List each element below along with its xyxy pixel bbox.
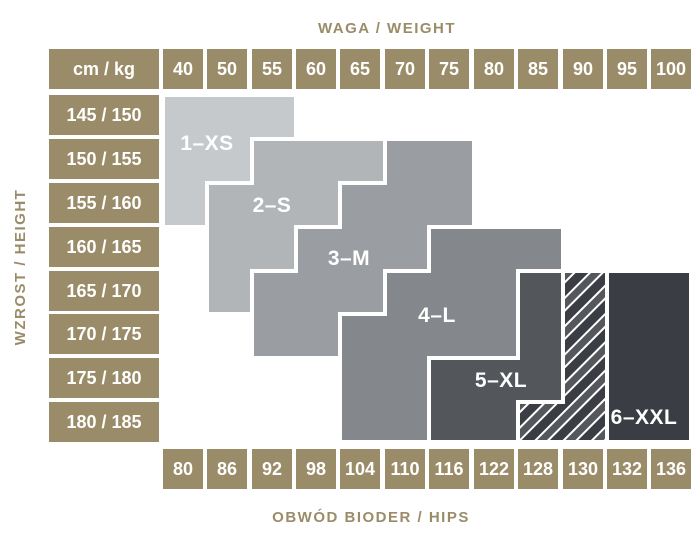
weight-header-row: cm / kg 40 50 55 60 65 70 75 80 85 90 95… — [49, 49, 691, 89]
weight-cell-label: 55 — [262, 59, 282, 79]
hips-cell-label: 130 — [568, 459, 598, 479]
height-cell-label: 155 / 160 — [66, 193, 141, 213]
weight-cell-label: 95 — [617, 59, 637, 79]
corner-cell-label: cm / kg — [73, 59, 135, 79]
size-label-5-xl: 5–XL — [475, 369, 527, 392]
height-cell-label: 180 / 185 — [66, 412, 141, 432]
size-label-2-s: 2–S — [253, 194, 292, 217]
hips-cell-label: 92 — [262, 459, 282, 479]
weight-cell-label: 40 — [173, 59, 193, 79]
weight-cell-label: 85 — [528, 59, 548, 79]
weight-cell-label: 65 — [350, 59, 370, 79]
height-cell-label: 150 / 155 — [66, 149, 141, 169]
height-header-column: 145 / 150 150 / 155 155 / 160 160 / 165 … — [49, 95, 159, 442]
height-cell-label: 165 / 170 — [66, 281, 141, 301]
hips-cell-label: 128 — [523, 459, 553, 479]
hips-cell-label: 80 — [173, 459, 193, 479]
weight-cell-label: 60 — [306, 59, 326, 79]
left-axis-title: WZROST / HEIGHT — [12, 189, 29, 346]
top-axis-title: WAGA / WEIGHT — [318, 20, 456, 37]
hips-cell-label: 86 — [217, 459, 237, 479]
weight-cell-label: 100 — [656, 59, 686, 79]
size-label-1-xs: 1–XS — [180, 132, 233, 155]
height-cell-label: 170 / 175 — [66, 324, 141, 344]
hips-cell-label: 116 — [434, 459, 463, 479]
size-label-4-l: 4–L — [418, 304, 456, 327]
weight-cell-label: 75 — [439, 59, 459, 79]
weight-cell-label: 70 — [395, 59, 415, 79]
hips-cell-label: 122 — [479, 459, 509, 479]
hips-cell-label: 132 — [612, 459, 642, 479]
size-chart-svg: WAGA / WEIGHT WZROST / HEIGHT OBWÓD BIOD… — [0, 0, 697, 539]
hips-footer-row: 80 86 92 98 104 110 116 122 128 130 132 … — [163, 449, 691, 489]
height-cell-label: 160 / 165 — [66, 237, 141, 257]
hips-cell-label: 98 — [306, 459, 326, 479]
height-cell-label: 145 / 150 — [66, 105, 141, 125]
weight-cell-label: 90 — [573, 59, 593, 79]
size-chart: WAGA / WEIGHT WZROST / HEIGHT OBWÓD BIOD… — [0, 0, 697, 539]
size-label-3-m: 3–M — [328, 247, 370, 270]
weight-cell-label: 50 — [217, 59, 237, 79]
bottom-axis-title: OBWÓD BIODER / HIPS — [272, 508, 470, 526]
height-cell-label: 175 / 180 — [66, 368, 141, 388]
hips-cell-label: 104 — [345, 459, 375, 479]
size-label-6-xxl: 6–XXL — [611, 406, 678, 429]
weight-cell-label: 80 — [484, 59, 504, 79]
hips-cell-label: 136 — [656, 459, 686, 479]
hips-cell-label: 110 — [390, 459, 419, 479]
